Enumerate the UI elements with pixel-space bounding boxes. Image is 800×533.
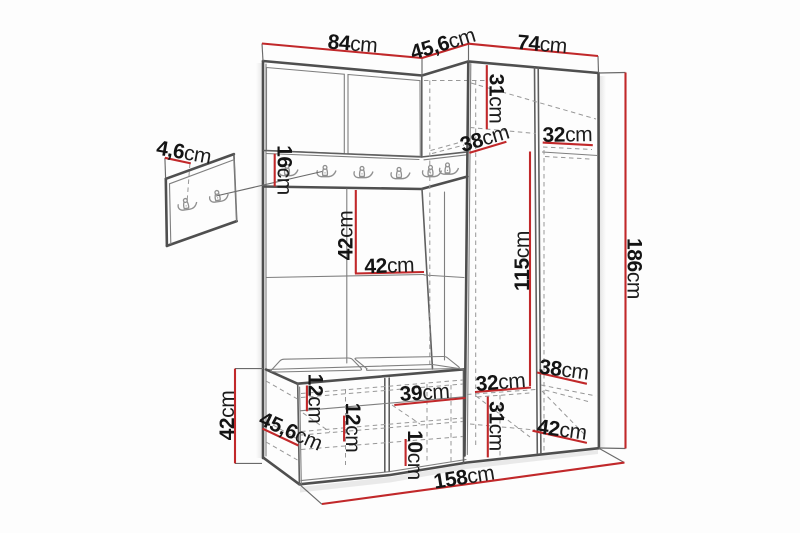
svg-text:42cm: 42cm (335, 211, 358, 261)
svg-text:12cm: 12cm (304, 374, 327, 424)
svg-text:31cm: 31cm (485, 74, 508, 124)
svg-text:42cm: 42cm (364, 254, 415, 279)
svg-text:74cm: 74cm (516, 31, 568, 58)
svg-text:32cm: 32cm (475, 369, 526, 396)
svg-text:186cm: 186cm (623, 238, 646, 299)
svg-text:84cm: 84cm (327, 31, 378, 58)
svg-text:32cm: 32cm (542, 123, 592, 147)
svg-text:31cm: 31cm (485, 401, 508, 451)
svg-text:12cm: 12cm (341, 403, 364, 453)
svg-text:115cm: 115cm (511, 231, 534, 291)
svg-text:16cm: 16cm (273, 145, 296, 195)
svg-text:39cm: 39cm (399, 380, 450, 406)
svg-text:42cm: 42cm (216, 391, 239, 441)
svg-text:10cm: 10cm (403, 430, 426, 480)
